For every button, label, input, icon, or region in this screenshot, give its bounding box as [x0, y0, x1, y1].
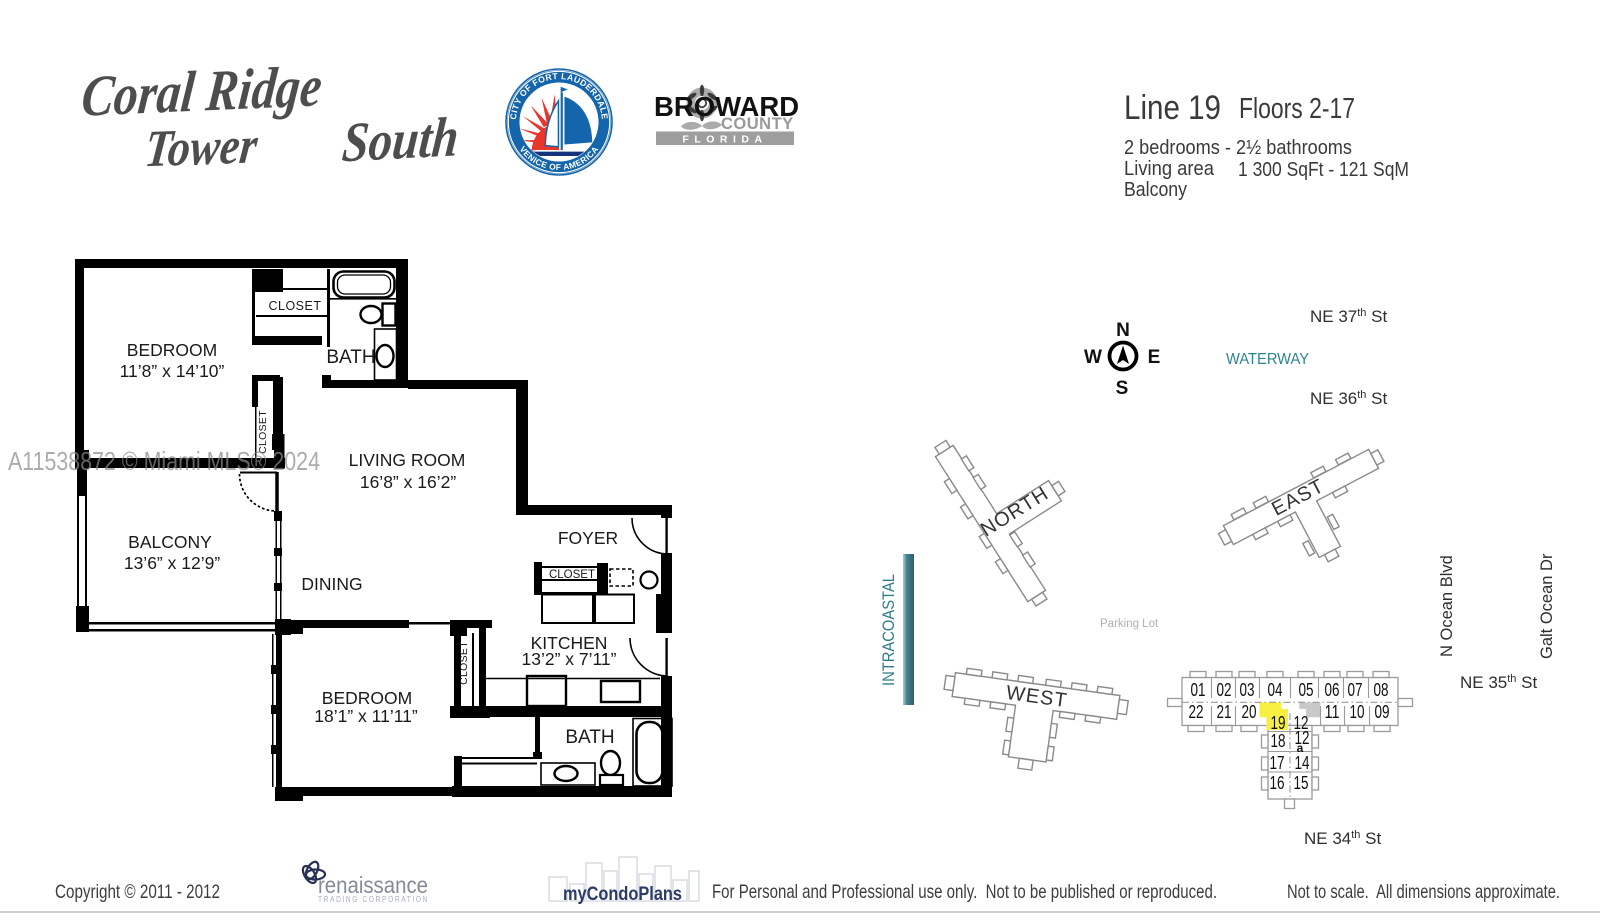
- svg-text:03: 03: [1240, 680, 1255, 700]
- svg-text:Copyright © 2011 - 2012: Copyright © 2011 - 2012: [55, 881, 220, 903]
- svg-text:1 300 SqFt - 121 SqM: 1 300 SqFt - 121 SqM: [1238, 159, 1409, 181]
- svg-text:Floors 2-17: Floors 2-17: [1239, 93, 1355, 125]
- svg-text:14: 14: [1295, 753, 1310, 773]
- svg-text:Parking Lot: Parking Lot: [1100, 618, 1159, 630]
- svg-text:18: 18: [1271, 731, 1286, 751]
- svg-text:TRADING CORPORATION: TRADING CORPORATION: [318, 895, 429, 904]
- svg-text:16: 16: [1270, 773, 1285, 793]
- svg-text:07: 07: [1348, 680, 1363, 700]
- svg-text:BEDROOM: BEDROOM: [322, 688, 412, 708]
- svg-text:WATERWAY: WATERWAY: [1226, 351, 1309, 368]
- svg-text:11’8” x 14’10”: 11’8” x 14’10”: [120, 361, 225, 381]
- svg-text:BATH: BATH: [326, 347, 375, 368]
- svg-text:04: 04: [1268, 680, 1283, 700]
- svg-text:09: 09: [1375, 702, 1390, 722]
- svg-text:Galt Ocean Dr: Galt Ocean Dr: [1538, 553, 1556, 659]
- svg-text:DINING: DINING: [301, 574, 362, 594]
- svg-text:CLOSET: CLOSET: [549, 569, 595, 581]
- svg-text:myCondoPlans: myCondoPlans: [563, 884, 682, 905]
- svg-text:N: N: [1116, 320, 1130, 341]
- svg-text:13’6” x 12’9”: 13’6” x 12’9”: [124, 553, 220, 573]
- svg-text:NE 37th St: NE 37th St: [1310, 307, 1387, 326]
- svg-text:16’8” x 16’2”: 16’8” x 16’2”: [360, 472, 456, 492]
- svg-text:Not to scale. All dimensions: Not to scale. All dimensions approximate…: [1287, 881, 1560, 903]
- svg-text:21: 21: [1217, 702, 1232, 722]
- svg-text:BEDROOM: BEDROOM: [127, 340, 217, 360]
- svg-text:BATH: BATH: [565, 727, 614, 748]
- svg-text:Tower: Tower: [142, 116, 261, 178]
- svg-text:15: 15: [1294, 773, 1309, 793]
- svg-text:01: 01: [1191, 680, 1206, 700]
- svg-text:LIVING ROOM: LIVING ROOM: [349, 450, 466, 470]
- svg-text:10: 10: [1350, 702, 1365, 722]
- svg-text:Living area: Living area: [1124, 158, 1215, 180]
- svg-text:W: W: [1084, 347, 1102, 368]
- svg-text:Balcony: Balcony: [1124, 179, 1187, 201]
- svg-text:11: 11: [1325, 702, 1340, 722]
- svg-text:INTRACOASTAL: INTRACOASTAL: [880, 574, 898, 686]
- svg-text:13’2” x 7’11”: 13’2” x 7’11”: [521, 649, 616, 669]
- svg-text:CLOSET: CLOSET: [458, 641, 470, 685]
- svg-text:E: E: [1148, 347, 1161, 368]
- svg-text:S: S: [1116, 378, 1129, 399]
- svg-text:CLOSET: CLOSET: [268, 299, 321, 313]
- svg-text:05: 05: [1299, 680, 1314, 700]
- svg-text:A11538872 © Miami MLS® 2024: A11538872 © Miami MLS® 2024: [8, 446, 320, 476]
- svg-text:COUNTY: COUNTY: [721, 115, 794, 133]
- svg-text:19: 19: [1271, 713, 1286, 733]
- svg-text:NE 34th St: NE 34th St: [1304, 829, 1381, 848]
- svg-text:08: 08: [1374, 680, 1389, 700]
- svg-text:02: 02: [1217, 680, 1232, 700]
- svg-text:22: 22: [1189, 702, 1204, 722]
- svg-text:BALCONY: BALCONY: [128, 532, 212, 552]
- svg-text:20: 20: [1242, 702, 1257, 722]
- svg-text:South: South: [340, 106, 461, 174]
- svg-text:Line 19: Line 19: [1124, 89, 1221, 127]
- svg-text:NE 36th St: NE 36th St: [1310, 389, 1387, 408]
- svg-text:06: 06: [1325, 680, 1340, 700]
- svg-text:For Personal and Professional: For Personal and Professional use only. …: [712, 881, 1217, 903]
- svg-text:17: 17: [1270, 753, 1285, 773]
- svg-text:NE 35th St: NE 35th St: [1460, 673, 1537, 692]
- svg-text:N Ocean Blvd: N Ocean Blvd: [1438, 555, 1456, 657]
- svg-text:18’1” x 11’11”: 18’1” x 11’11”: [314, 706, 418, 726]
- svg-text:FOYER: FOYER: [558, 528, 618, 548]
- svg-text:2 bedrooms - 2½ bathrooms: 2 bedrooms - 2½ bathrooms: [1124, 137, 1352, 159]
- svg-text:FLORIDA: FLORIDA: [682, 134, 767, 146]
